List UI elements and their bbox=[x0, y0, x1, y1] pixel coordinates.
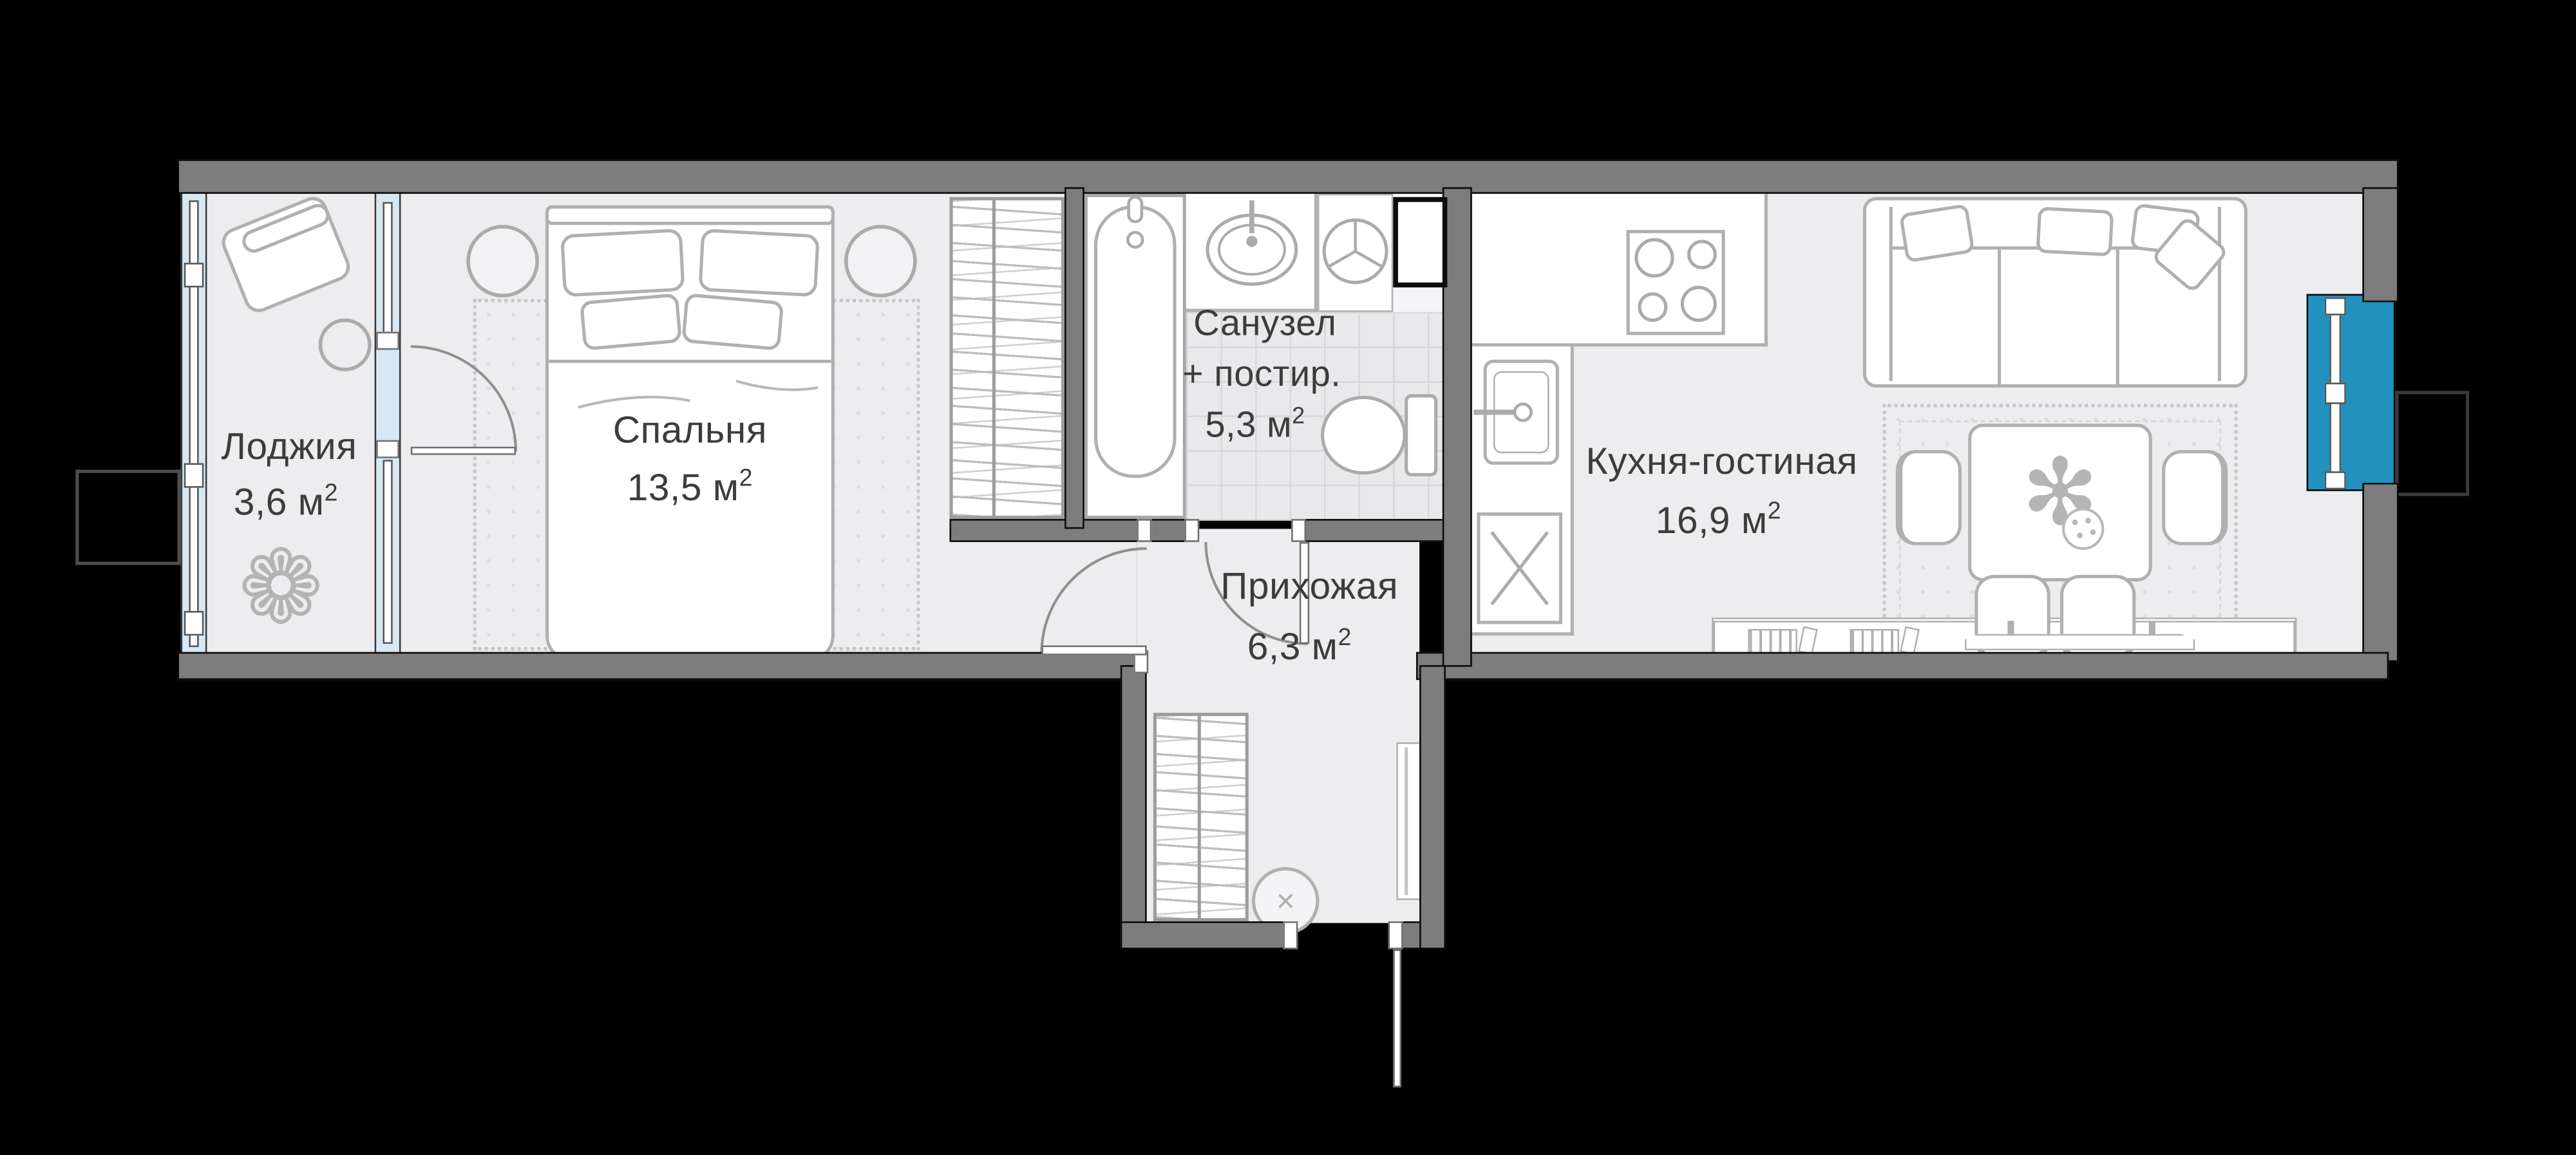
loggia-label-name: Лоджия bbox=[221, 424, 357, 469]
plate-dot bbox=[2072, 520, 2078, 525]
balcony-door-jamb-top bbox=[376, 332, 399, 350]
wall-bottom-left bbox=[178, 652, 1137, 680]
plate-dot bbox=[2090, 529, 2096, 535]
window-connector bbox=[184, 263, 204, 287]
wall-right-upper bbox=[2362, 187, 2398, 303]
ventilation-shaft bbox=[1393, 197, 1447, 287]
entrance-door-jamb-right bbox=[1388, 921, 1403, 949]
loggia-label-area: 3,6 м2 bbox=[234, 480, 338, 525]
bathroom-label-area: 5,3 м2 bbox=[1205, 404, 1305, 447]
balcony-partition-frame-upper bbox=[383, 202, 392, 333]
blanket-fold bbox=[736, 381, 819, 390]
stove-burner bbox=[1636, 239, 1672, 276]
blanket-fold bbox=[578, 397, 690, 408]
bathtub-faucet bbox=[1129, 197, 1142, 221]
loggia-table bbox=[320, 320, 370, 370]
window-connector bbox=[2325, 382, 2346, 404]
bathroom-label-name: Санузел bbox=[1193, 302, 1336, 344]
stove-burner bbox=[1682, 287, 1715, 320]
apartment-plan: ❁ ✕ ✻ bbox=[0, 0, 2576, 1154]
wall-hall-right bbox=[1419, 665, 1446, 949]
bedroom-door-jamb-top bbox=[1137, 519, 1151, 542]
toilet-tank bbox=[1406, 396, 1436, 474]
bathroom-door-jamb-right bbox=[1291, 519, 1306, 542]
stove-burner bbox=[1640, 294, 1666, 321]
table-plate bbox=[2063, 509, 2103, 549]
wall-top bbox=[178, 159, 2399, 194]
bathtub-drain bbox=[1128, 232, 1142, 247]
plate-dot bbox=[2077, 532, 2083, 538]
nightstand-right bbox=[846, 227, 915, 296]
bedroom-label-name: Спальня bbox=[613, 408, 767, 453]
wall-wardrobe-bathroom bbox=[1065, 187, 1084, 529]
hallway-label-area: 6,3 м2 bbox=[1247, 625, 1352, 670]
stove-burner bbox=[1689, 241, 1715, 268]
window-connector bbox=[184, 463, 204, 487]
hallway-label-name: Прихожая bbox=[1220, 564, 1398, 608]
floorplan-canvas: ❁ ✕ ✻ bbox=[0, 0, 2576, 1155]
nightstand-left bbox=[468, 227, 537, 296]
bathroom-door-jamb-left bbox=[1184, 519, 1199, 542]
bedroom-door-arc bbox=[1041, 549, 1146, 653]
wall-hall-left bbox=[1121, 665, 1147, 949]
window-connector bbox=[2325, 297, 2346, 315]
window-connector bbox=[184, 611, 204, 635]
window-connector bbox=[2325, 471, 2346, 489]
balcony-door-arc bbox=[411, 346, 516, 451]
wall-bottom-kitchen bbox=[1416, 652, 2389, 680]
toilet-bowl bbox=[1323, 397, 1405, 473]
entrance-door-leaf bbox=[1393, 949, 1401, 1087]
bathroom-sink-faucet-dot bbox=[1246, 236, 1257, 247]
bedroom-label-area: 13,5 м2 bbox=[627, 465, 753, 510]
wall-right-lower bbox=[2362, 483, 2398, 662]
balcony-door-jamb-bottom bbox=[376, 440, 399, 458]
wall-hall-bottom-left bbox=[1121, 921, 1294, 949]
balcony-partition-frame-lower bbox=[383, 460, 392, 644]
plate-dot bbox=[2085, 518, 2091, 523]
kitchen-living-label-name: Кухня-гостиная bbox=[1586, 439, 1857, 484]
kitchen-living-label-area: 16,9 м2 bbox=[1656, 498, 1781, 543]
bathroom-label-subtitle: + постир. bbox=[1182, 353, 1341, 395]
bedroom-door-leaf bbox=[1041, 646, 1146, 655]
entrance-door-jamb-left bbox=[1283, 921, 1298, 949]
balcony-door-leaf bbox=[411, 447, 516, 455]
kitchen-faucet-handle bbox=[1515, 404, 1531, 421]
